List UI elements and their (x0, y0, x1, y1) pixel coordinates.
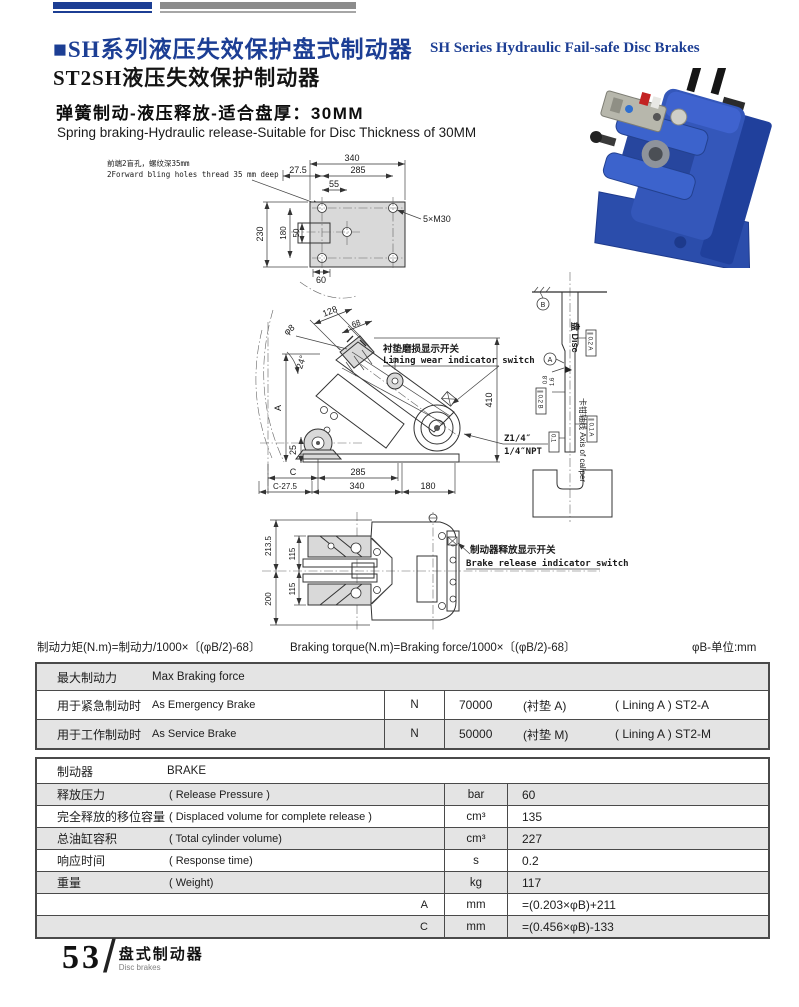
dim-hole-phi8: φ8 (282, 322, 297, 337)
top-bar-gray (160, 2, 356, 9)
drawing-bottom-view: 制动器释放显示开关 Brake release indicator switch… (262, 512, 629, 630)
brake-release-switch-label-en: Brake release indicator switch (466, 558, 629, 569)
footer-section-en: Disc brakes (119, 963, 204, 972)
row-label-cn: 完全释放的移位容量 (57, 808, 169, 825)
disc-label: 盘 Disc (570, 322, 581, 353)
row-label-en: ( Weight) (169, 877, 213, 889)
model-title: ST2SH液压失效保护制动器 (53, 62, 320, 92)
row-label-cn: 响应时间 (57, 852, 169, 869)
value-cell: 50000 (459, 727, 523, 741)
formula-unit-note: φB-单位:mm (692, 639, 756, 655)
unit-cell: cm³ (444, 828, 508, 849)
dim-180-top: 180 (279, 226, 288, 240)
page-number: 53 (62, 938, 102, 978)
lining-cn: (衬垫 M) (523, 726, 615, 743)
tolerance-frame-1: ∥ 0.2 A (586, 330, 596, 356)
table1-header: 最大制动力 Max Braking force (37, 664, 768, 690)
dim-25: 25 (288, 445, 298, 455)
row-label-cn: 重量 (57, 874, 169, 891)
dim-50: 50 (292, 228, 301, 237)
tolerance-frame-3: ∥ 0.1 A (587, 416, 597, 442)
row-label-en: ( Release Pressure ) (169, 789, 270, 801)
top-bar-blue-line (53, 11, 152, 13)
engineering-drawings: 前端2盲孔，螺纹深35mm 2Forward bling holes threa… (0, 148, 799, 650)
tolerance-frame-2: ∥ 0.2 B (536, 388, 546, 414)
value-cell: =(0.203×φB)+211 (508, 894, 768, 915)
unit-cell: mm (444, 894, 508, 915)
footer-slash: / (103, 936, 116, 976)
row-label-en: ( Displaced volume for complete release … (169, 811, 372, 823)
dim-angle-24: 24° (294, 354, 308, 370)
lining-en: ( Lining A ) ST2-M (615, 727, 711, 741)
formula-cn: 制动力矩(N.m)=制动力/1000×〔(φB/2)-68〕 (37, 639, 260, 655)
catalog-page: ■SH系列液压失效保护盘式制动器 SH Series Hydraulic Fai… (0, 0, 799, 1007)
dim-115-top: 115 (288, 547, 297, 560)
table2-header-cn: 制动器 (57, 763, 167, 780)
dim-128: 128 (321, 304, 339, 319)
dim-27-5: 27.5 (289, 165, 307, 175)
row-label-cn: 用于紧急制动时 (57, 697, 152, 714)
dim-C: C (290, 467, 297, 477)
roughness-0-8: 0.8 (543, 375, 549, 384)
table-row-service-brake: 用于工作制动时 As Service Brake N 50000 (衬垫 M) … (37, 719, 768, 748)
row-letter: C (420, 921, 428, 933)
row-label-en: ( Response time) (169, 855, 253, 867)
table-row-cylinder-volume: 总油缸容积 ( Total cylinder volume) cm³ 227 (37, 827, 768, 849)
photo-pin-1 (686, 68, 701, 92)
dim-60: 60 (316, 275, 326, 285)
dim-285-top: 285 (350, 165, 365, 175)
dim-C-27-5: C-27.5 (273, 482, 298, 491)
footer-section-cn: 盘式制动器 (119, 947, 204, 963)
unit-cell: s (444, 850, 508, 871)
formula-en: Braking torque(N.m)=Braking force/1000×〔… (290, 639, 576, 655)
dim-340-top: 340 (344, 153, 359, 163)
value-cell: 60 (508, 784, 768, 805)
thread-label: 5×M30 (423, 214, 451, 224)
value-cell: 117 (508, 872, 768, 893)
table2-header: 制动器 BRAKE (37, 759, 768, 783)
unit-cell: N (384, 691, 445, 719)
datum-b-label: B (541, 302, 546, 309)
dim-200: 200 (264, 592, 273, 606)
table-row-release-pressure: 释放压力 ( Release Pressure ) bar 60 (37, 783, 768, 805)
page-title-en: SH Series Hydraulic Fail-safe Disc Brake… (430, 40, 700, 57)
row-label-en: ( Total cylinder volume) (169, 833, 282, 845)
drawing-disc-view: B A 盘 Disc 0.8 1.6 ∥ 0.2 A ∥ 0.2 B (532, 272, 612, 522)
value-cell: 227 (508, 828, 768, 849)
blind-hole-note-en: 2Forward bling holes thread 35 mm deep (107, 170, 279, 179)
blind-hole-note-cn: 前端2盲孔，螺纹深35mm (107, 158, 190, 168)
row-label-cn: 用于工作制动时 (57, 726, 152, 743)
table-row-dim-a: A mm =(0.203×φB)+211 (37, 893, 768, 915)
svg-text:∥ 0.2 B: ∥ 0.2 B (537, 390, 544, 409)
drawing-side-view: φ8 128 68 24° 衬垫磨损显示开关 Lining wear indic… (256, 282, 548, 494)
unit-cell: cm³ (444, 806, 508, 827)
tolerance-frame-4: 0.1 (549, 432, 559, 452)
row-letter: A (421, 899, 428, 911)
dim-230: 230 (255, 226, 265, 241)
svg-text:∥ 0.1 A: ∥ 0.1 A (588, 418, 595, 436)
unit-cell: mm (444, 916, 508, 937)
unit-cell: kg (444, 872, 508, 893)
unit-cell: N (384, 720, 445, 748)
lining-wear-switch-label-en: Lining wear indicator switch (383, 355, 535, 366)
row-label-cn: 释放压力 (57, 786, 169, 803)
page-title-cn: ■SH系列液压失效保护盘式制动器 (53, 30, 413, 64)
table2-header-en: BRAKE (167, 765, 206, 777)
top-bar-blue (53, 2, 152, 9)
table1-header-cn: 最大制动力 (57, 669, 152, 686)
dim-55: 55 (329, 179, 339, 189)
value-cell: 70000 (459, 698, 523, 712)
dim-115-bottom: 115 (288, 582, 297, 595)
lining-wear-switch-label-cn: 衬垫磨损显示开关 (383, 343, 460, 355)
value-cell: 135 (508, 806, 768, 827)
dim-213-5: 213.5 (264, 535, 273, 556)
lining-cn: (衬垫 A) (523, 697, 615, 714)
top-bar-gray-line (160, 11, 356, 13)
row-label-cn: 总油缸容积 (57, 830, 169, 847)
dim-340-side: 340 (349, 481, 364, 491)
dim-410: 410 (484, 392, 494, 407)
mounting-foundation (533, 470, 612, 517)
table-row-weight: 重量 ( Weight) kg 117 (37, 871, 768, 893)
datum-a-label: A (548, 357, 553, 364)
port-label-z14: Z1/4″ (504, 434, 531, 444)
table-row-displaced-volume: 完全释放的移位容量 ( Displaced volume for complet… (37, 805, 768, 827)
table1-header-en: Max Braking force (152, 671, 245, 683)
unit-cell: bar (444, 784, 508, 805)
row-label-en: As Emergency Brake (152, 699, 255, 711)
table-row-dim-c: C mm =(0.456×φB)-133 (37, 915, 768, 937)
svg-text:0.1: 0.1 (550, 434, 556, 443)
svg-text:∥ 0.2 A: ∥ 0.2 A (587, 332, 594, 350)
photo-pin-2 (711, 68, 726, 95)
port-label-npt: 1/4″NPT (504, 447, 543, 457)
feature-line-en: Spring braking-Hydraulic release-Suitabl… (57, 125, 476, 140)
max-braking-force-table: 最大制动力 Max Braking force 用于紧急制动时 As Emerg… (35, 662, 770, 750)
brake-release-switch-label-cn: 制动器释放显示开关 (470, 544, 556, 556)
drawing-top-view: 前端2盲孔，螺纹深35mm 2Forward bling holes threa… (107, 153, 451, 285)
braking-torque-formula: 制动力矩(N.m)=制动力/1000×〔(φB/2)-68〕 Braking t… (0, 639, 799, 655)
table-row-emergency-brake: 用于紧急制动时 As Emergency Brake N 70000 (衬垫 A… (37, 690, 768, 719)
brake-specs-table: 制动器 BRAKE 释放压力 ( Release Pressure ) bar … (35, 757, 770, 939)
dim-180-side: 180 (420, 481, 435, 491)
table-row-response-time: 响应时间 ( Response time) s 0.2 (37, 849, 768, 871)
dim-68: 68 (350, 318, 362, 330)
value-cell: =(0.456×φB)-133 (508, 916, 768, 937)
lining-en: ( Lining A ) ST2-A (615, 698, 709, 712)
row-label-en: As Service Brake (152, 728, 236, 740)
dim-285-side: 285 (350, 467, 365, 477)
page-footer: 53 / 盘式制动器 Disc brakes (62, 938, 204, 978)
roughness-1-6: 1.6 (550, 377, 556, 386)
value-cell: 0.2 (508, 850, 768, 871)
dim-A: A (273, 405, 283, 411)
feature-line-cn: 弹簧制动-液压释放-适合盘厚：30MM (56, 99, 364, 124)
